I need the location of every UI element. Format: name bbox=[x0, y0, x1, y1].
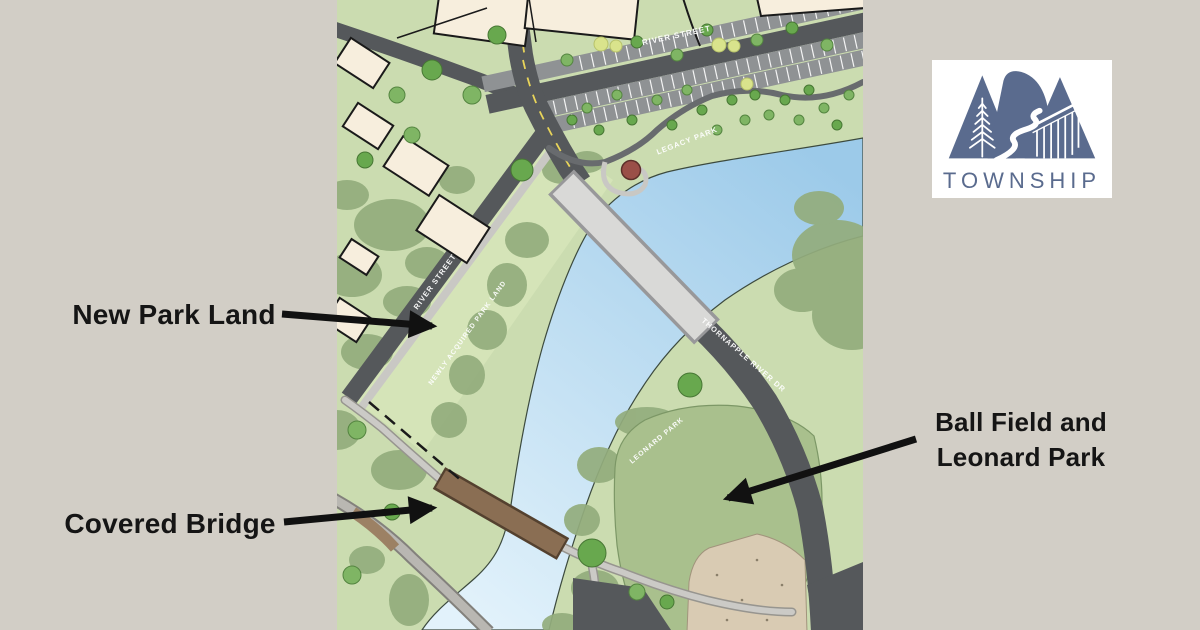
callout-new-park-land: New Park Land bbox=[54, 299, 294, 331]
infographic-canvas: RIVER STREET LEGACY PARK RIVER STREET NE… bbox=[0, 0, 1200, 630]
ada-logo-mark-icon bbox=[947, 66, 1097, 166]
callout-covered-bridge: Covered Bridge bbox=[50, 508, 290, 540]
callout-ball-field-line2: Leonard Park bbox=[903, 440, 1139, 475]
callout-ball-field-line1: Ball Field and bbox=[903, 405, 1139, 440]
gazebo bbox=[622, 161, 641, 180]
ada-township-logo: TOWNSHIP bbox=[932, 60, 1112, 198]
logo-wordmark: TOWNSHIP bbox=[943, 168, 1101, 194]
mountains-icon bbox=[949, 71, 1095, 158]
site-plan-map: RIVER STREET LEGACY PARK RIVER STREET NE… bbox=[337, 0, 863, 630]
callout-ball-field: Ball Field and Leonard Park bbox=[903, 405, 1139, 475]
site-plan-map-svg: RIVER STREET LEGACY PARK RIVER STREET NE… bbox=[337, 0, 863, 630]
